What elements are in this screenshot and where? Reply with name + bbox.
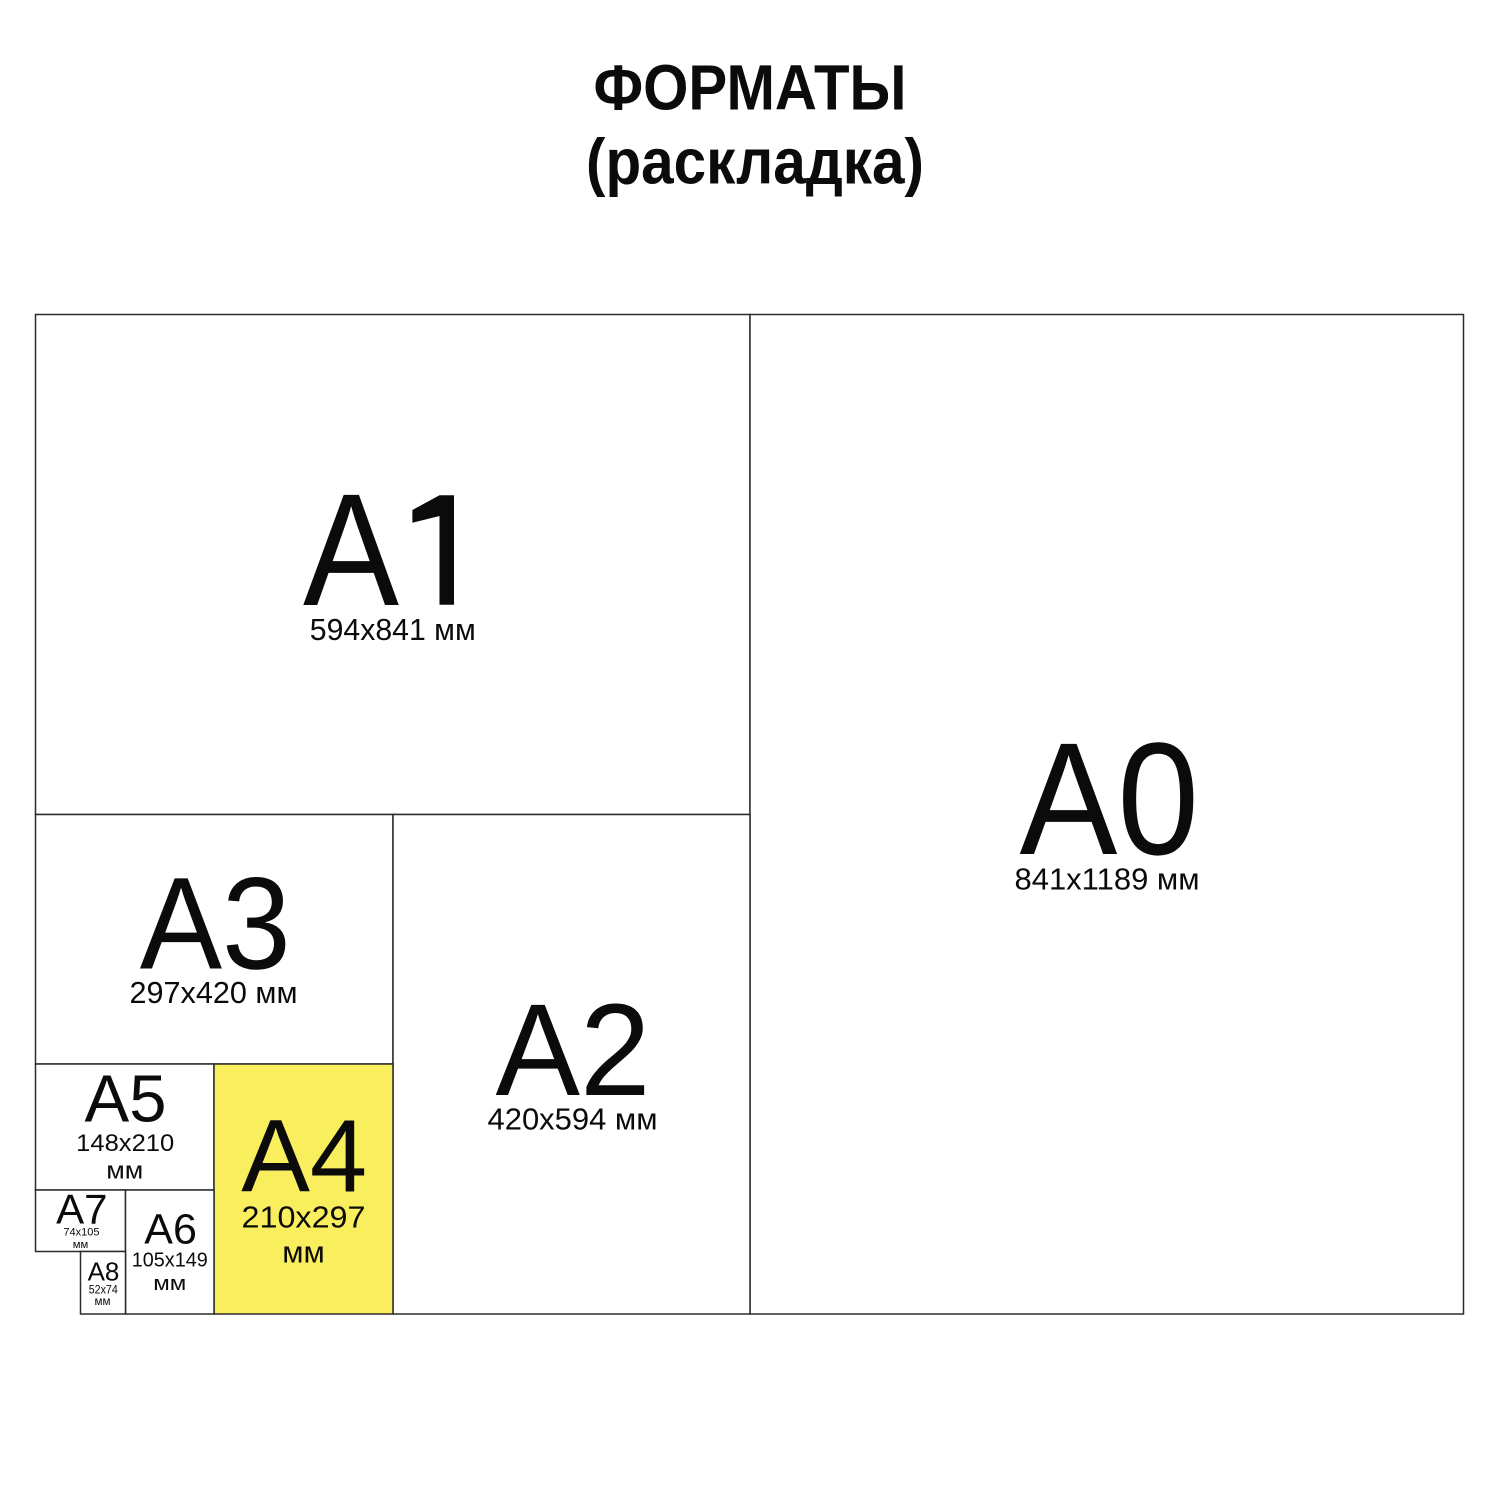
svg-text:105х149: 105х149 — [132, 1249, 208, 1272]
svg-text:210х297: 210х297 — [242, 1200, 366, 1235]
svg-text:А5: А5 — [85, 1062, 167, 1137]
svg-text:А6: А6 — [144, 1206, 197, 1254]
svg-text:мм: мм — [153, 1272, 186, 1295]
svg-text:А8: А8 — [88, 1257, 120, 1287]
svg-text:297х420 мм: 297х420 мм — [130, 975, 298, 1010]
svg-text:ФОРМАТЫ: ФОРМАТЫ — [594, 52, 907, 124]
svg-text:мм: мм — [95, 1296, 111, 1308]
svg-text:А4: А4 — [241, 1099, 367, 1214]
svg-text:420х594 мм: 420х594 мм — [488, 1102, 658, 1137]
svg-text:мм: мм — [106, 1158, 143, 1185]
svg-text:74х105: 74х105 — [63, 1227, 99, 1239]
svg-text:148х210: 148х210 — [76, 1130, 174, 1157]
svg-text:841х1189 мм: 841х1189 мм — [1015, 862, 1200, 897]
svg-text:594х841 мм: 594х841 мм — [310, 612, 476, 647]
svg-text:(раскладка): (раскладка) — [586, 125, 924, 197]
svg-text:52х74: 52х74 — [89, 1285, 119, 1297]
svg-text:А7: А7 — [56, 1186, 107, 1233]
svg-text:мм: мм — [282, 1235, 325, 1270]
svg-text:мм: мм — [73, 1239, 89, 1251]
